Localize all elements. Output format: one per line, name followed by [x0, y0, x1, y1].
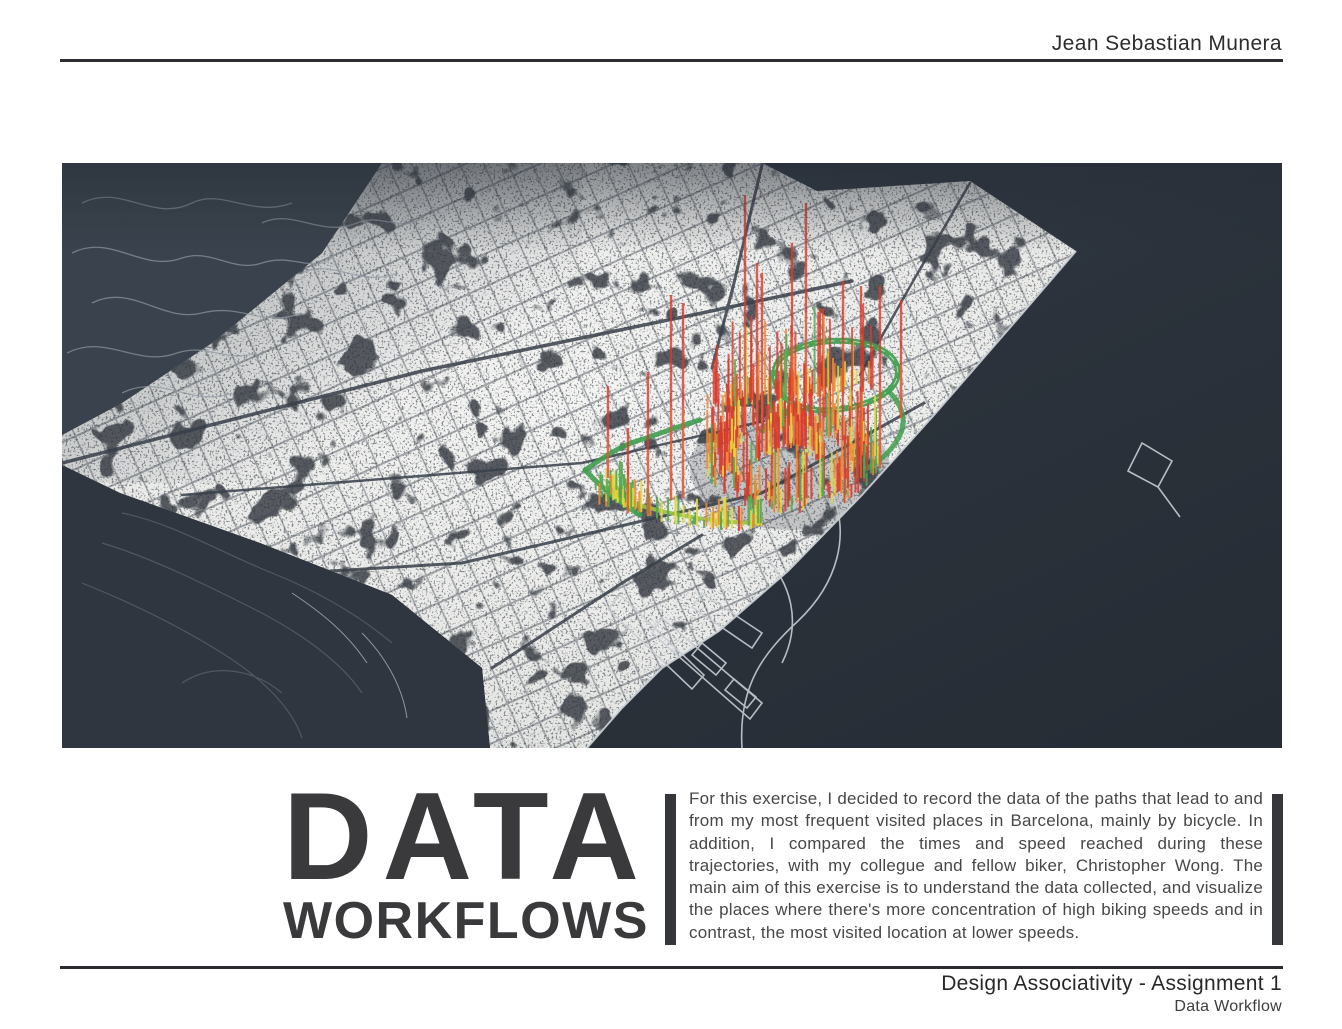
author-name: Jean Sebastian Munera — [1052, 32, 1282, 56]
paragraph-left-bar — [665, 794, 676, 945]
page-title: DATA WORKFLOWS — [283, 775, 649, 947]
footer-subtitle: Data Workflow — [1174, 998, 1282, 1016]
title-word-workflows: WORKFLOWS — [283, 895, 649, 947]
project-description: For this exercise, I decided to record t… — [689, 788, 1263, 944]
footer-rule — [60, 966, 1283, 969]
header-rule — [60, 59, 1283, 62]
paragraph-right-bar — [1272, 794, 1283, 945]
map-vignette — [62, 163, 1282, 253]
barcelona-map-svg — [62, 163, 1282, 748]
footer-course: Design Associativity - Assignment 1 — [941, 972, 1282, 996]
map-image — [62, 163, 1282, 748]
title-word-data: DATA — [283, 775, 649, 899]
